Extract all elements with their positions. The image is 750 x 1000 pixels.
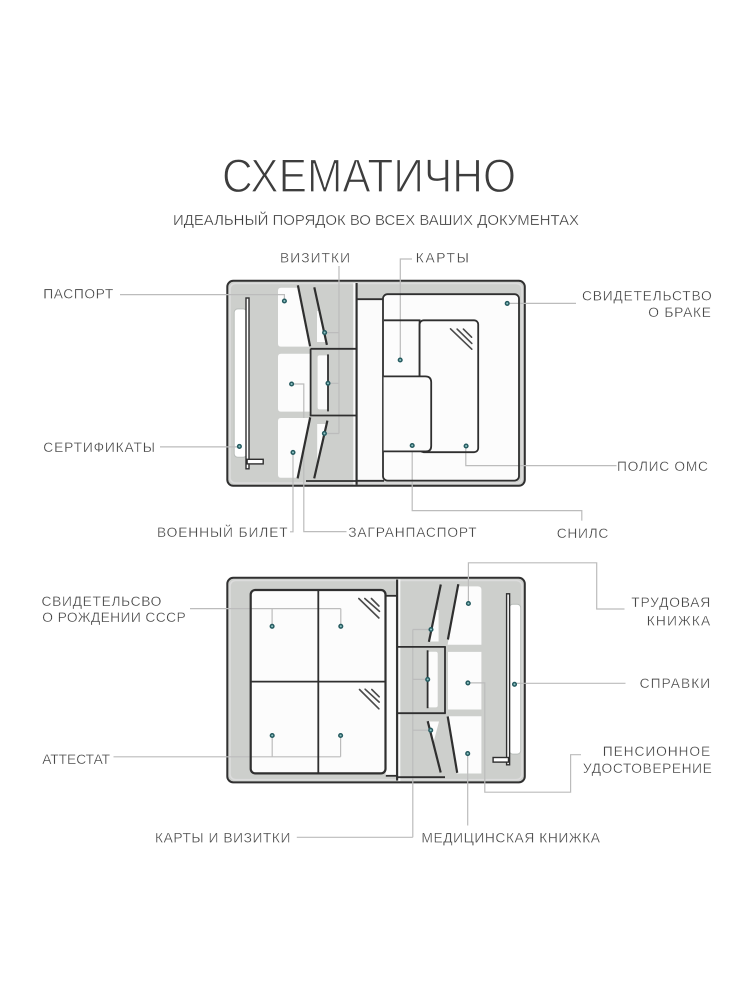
svg-text:СНИЛС: СНИЛС bbox=[557, 526, 609, 541]
svg-text:О БРАКЕ: О БРАКЕ bbox=[648, 305, 711, 320]
svg-text:ПАСПОРТ: ПАСПОРТ bbox=[43, 286, 114, 301]
svg-text:СХЕМАТИЧНО: СХЕМАТИЧНО bbox=[222, 150, 516, 203]
svg-text:СПРАВКИ: СПРАВКИ bbox=[640, 676, 711, 691]
svg-text:КНИЖКА: КНИЖКА bbox=[647, 614, 711, 629]
svg-text:ТРУДОВАЯ: ТРУДОВАЯ bbox=[631, 595, 710, 610]
svg-text:СЕРТИФИКАТЫ: СЕРТИФИКАТЫ bbox=[43, 440, 155, 455]
svg-text:УДОСТОВЕРЕНИЕ: УДОСТОВЕРЕНИЕ bbox=[583, 761, 712, 776]
svg-text:АТТЕСТАТ: АТТЕСТАТ bbox=[42, 752, 110, 767]
svg-text:ПОЛИС ОМС: ПОЛИС ОМС bbox=[617, 459, 708, 474]
svg-text:ИДЕАЛЬНЫЙ ПОРЯДОК ВО ВСЕХ ВАШИ: ИДЕАЛЬНЫЙ ПОРЯДОК ВО ВСЕХ ВАШИХ ДОКУМЕНТ… bbox=[173, 211, 579, 229]
svg-text:КАРТЫ: КАРТЫ bbox=[416, 251, 469, 266]
svg-text:О РОЖДЕНИИ СССР: О РОЖДЕНИИ СССР bbox=[42, 610, 186, 625]
svg-text:ВОЕННЫЙ БИЛЕТ: ВОЕННЫЙ БИЛЕТ bbox=[157, 523, 288, 540]
svg-text:СВИДЕТЕЛЬСТВО: СВИДЕТЕЛЬСТВО bbox=[582, 288, 712, 303]
svg-text:ЗАГРАНПАСПОРТ: ЗАГРАНПАСПОРТ bbox=[348, 525, 477, 540]
svg-text:МЕДИЦИНСКАЯ КНИЖКА: МЕДИЦИНСКАЯ КНИЖКА bbox=[421, 830, 600, 845]
svg-text:СВИДЕТЕЛЬСВО: СВИДЕТЕЛЬСВО bbox=[42, 594, 162, 609]
svg-text:КАРТЫ И ВИЗИТКИ: КАРТЫ И ВИЗИТКИ bbox=[155, 830, 290, 845]
svg-text:ВИЗИТКИ: ВИЗИТКИ bbox=[280, 251, 350, 266]
svg-text:ПЕНСИОННОЕ: ПЕНСИОННОЕ bbox=[603, 744, 710, 759]
